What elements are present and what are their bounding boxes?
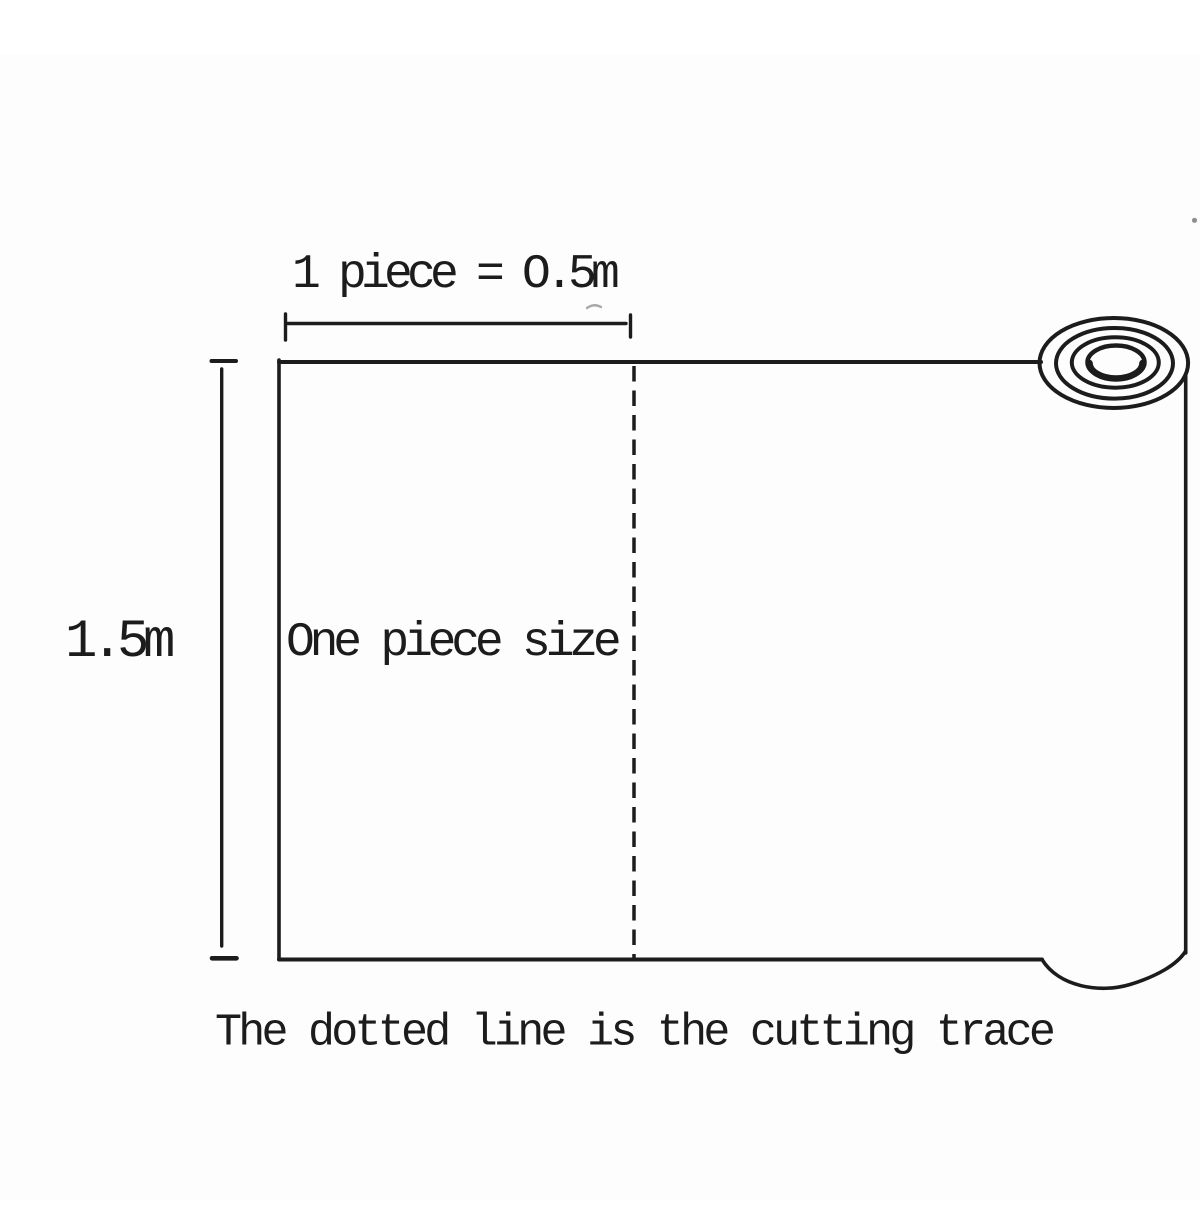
svg-text:The dotted line is the cutting: The dotted line is the cutting trace — [215, 1008, 1054, 1059]
svg-text:1 piece = O.5m: 1 piece = O.5m — [292, 248, 618, 302]
svg-text:1.5m: 1.5m — [65, 612, 173, 673]
svg-text:One piece size: One piece size — [286, 616, 619, 670]
